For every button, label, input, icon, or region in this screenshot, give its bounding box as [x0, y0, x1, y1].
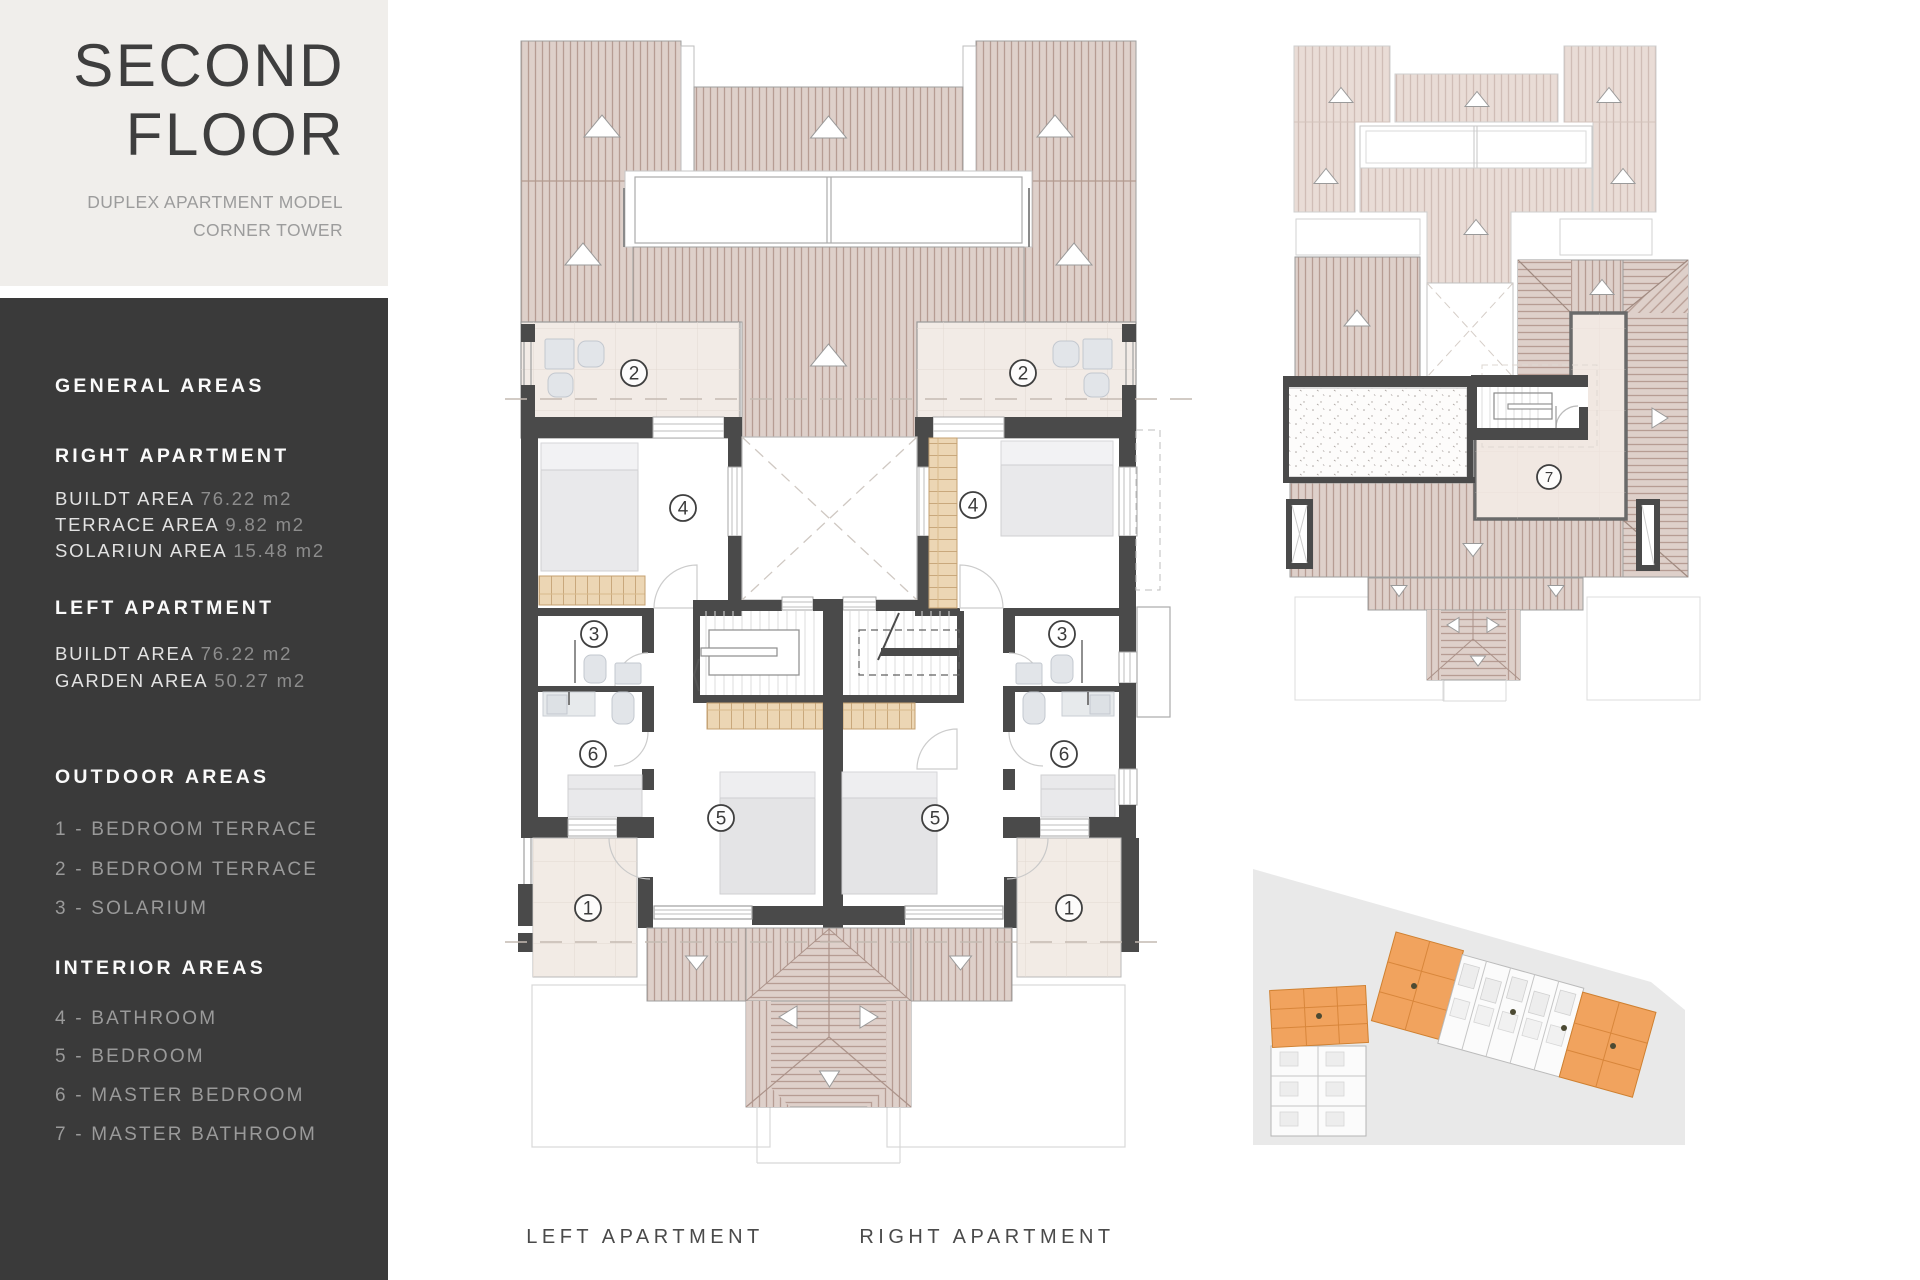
svg-text:INTERIOR AREAS: INTERIOR AREAS [55, 957, 266, 979]
svg-text:7: 7 [1545, 469, 1553, 486]
svg-text:6: 6 [1059, 744, 1070, 765]
svg-text:3 - SOLARIUM: 3 - SOLARIUM [55, 898, 208, 919]
svg-text:5 - BEDROOM: 5 - BEDROOM [55, 1046, 205, 1067]
svg-text:SOLARIUN AREA 15.48 m2: SOLARIUN AREA 15.48 m2 [55, 540, 325, 561]
svg-text:3: 3 [589, 624, 600, 645]
svg-text:2: 2 [629, 363, 640, 384]
svg-text:2: 2 [1018, 363, 1029, 384]
svg-text:LEFT APARTMENT: LEFT APARTMENT [526, 1226, 763, 1248]
svg-text:BUILDT AREA 76.22 m2: BUILDT AREA 76.22 m2 [55, 643, 292, 664]
svg-text:OUTDOOR AREAS: OUTDOOR AREAS [55, 766, 269, 788]
svg-text:4 - BATHROOM: 4 - BATHROOM [55, 1008, 217, 1029]
svg-text:2 - BEDROOM TERRACE: 2 - BEDROOM TERRACE [55, 859, 318, 880]
svg-text:6 - MASTER BEDROOM: 6 - MASTER BEDROOM [55, 1085, 305, 1106]
svg-text:6: 6 [588, 744, 599, 765]
svg-text:GENERAL AREAS: GENERAL AREAS [55, 375, 265, 397]
svg-text:4: 4 [678, 498, 689, 519]
svg-text:1 - BEDROOM TERRACE: 1 - BEDROOM TERRACE [55, 819, 318, 840]
svg-text:5: 5 [930, 808, 941, 829]
svg-text:SECOND: SECOND [73, 32, 345, 99]
svg-text:RIGHT APARTMENT: RIGHT APARTMENT [859, 1226, 1114, 1248]
svg-text:CORNER TOWER: CORNER TOWER [193, 220, 343, 240]
svg-text:5: 5 [716, 808, 727, 829]
svg-text:3: 3 [1057, 624, 1068, 645]
svg-text:FLOOR: FLOOR [126, 101, 345, 168]
svg-text:TERRACE AREA 9.82 m2: TERRACE AREA 9.82 m2 [55, 514, 305, 535]
svg-text:DUPLEX APARTMENT MODEL: DUPLEX APARTMENT MODEL [87, 192, 343, 212]
svg-text:BUILDT AREA 76.22 m2: BUILDT AREA 76.22 m2 [55, 488, 292, 509]
svg-text:4: 4 [968, 495, 979, 516]
svg-text:RIGHT APARTMENT: RIGHT APARTMENT [55, 445, 289, 467]
svg-text:LEFT APARTMENT: LEFT APARTMENT [55, 597, 274, 619]
svg-text:7 - MASTER BATHROOM: 7 - MASTER BATHROOM [55, 1124, 317, 1145]
svg-text:1: 1 [583, 898, 594, 919]
svg-text:GARDEN AREA 50.27 m2: GARDEN AREA 50.27 m2 [55, 670, 306, 691]
svg-text:1: 1 [1064, 898, 1075, 919]
